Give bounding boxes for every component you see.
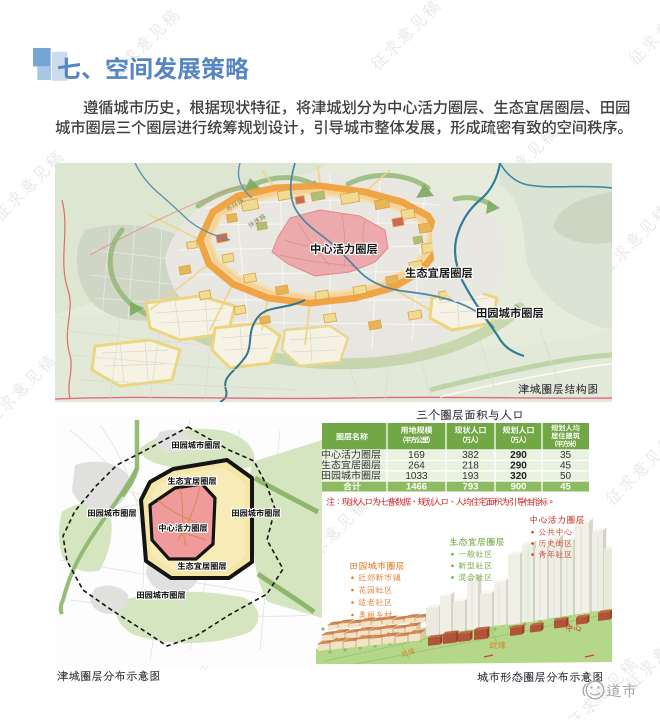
svg-text:35: 35	[560, 450, 572, 461]
svg-text:900: 900	[511, 482, 527, 493]
svg-text:45: 45	[560, 460, 572, 471]
svg-text:793: 793	[463, 482, 479, 493]
svg-text:1033: 1033	[405, 471, 428, 482]
svg-text:290: 290	[510, 460, 527, 471]
svg-text:382: 382	[462, 450, 479, 461]
svg-text:320: 320	[510, 471, 527, 482]
svg-text:169: 169	[408, 450, 425, 461]
svg-text:290: 290	[510, 450, 527, 461]
svg-text:218: 218	[462, 460, 479, 471]
svg-text:50: 50	[560, 471, 572, 482]
svg-text:45: 45	[560, 482, 571, 493]
svg-text:193: 193	[462, 471, 479, 482]
svg-text:1466: 1466	[406, 482, 427, 493]
svg-text:264: 264	[408, 460, 425, 471]
